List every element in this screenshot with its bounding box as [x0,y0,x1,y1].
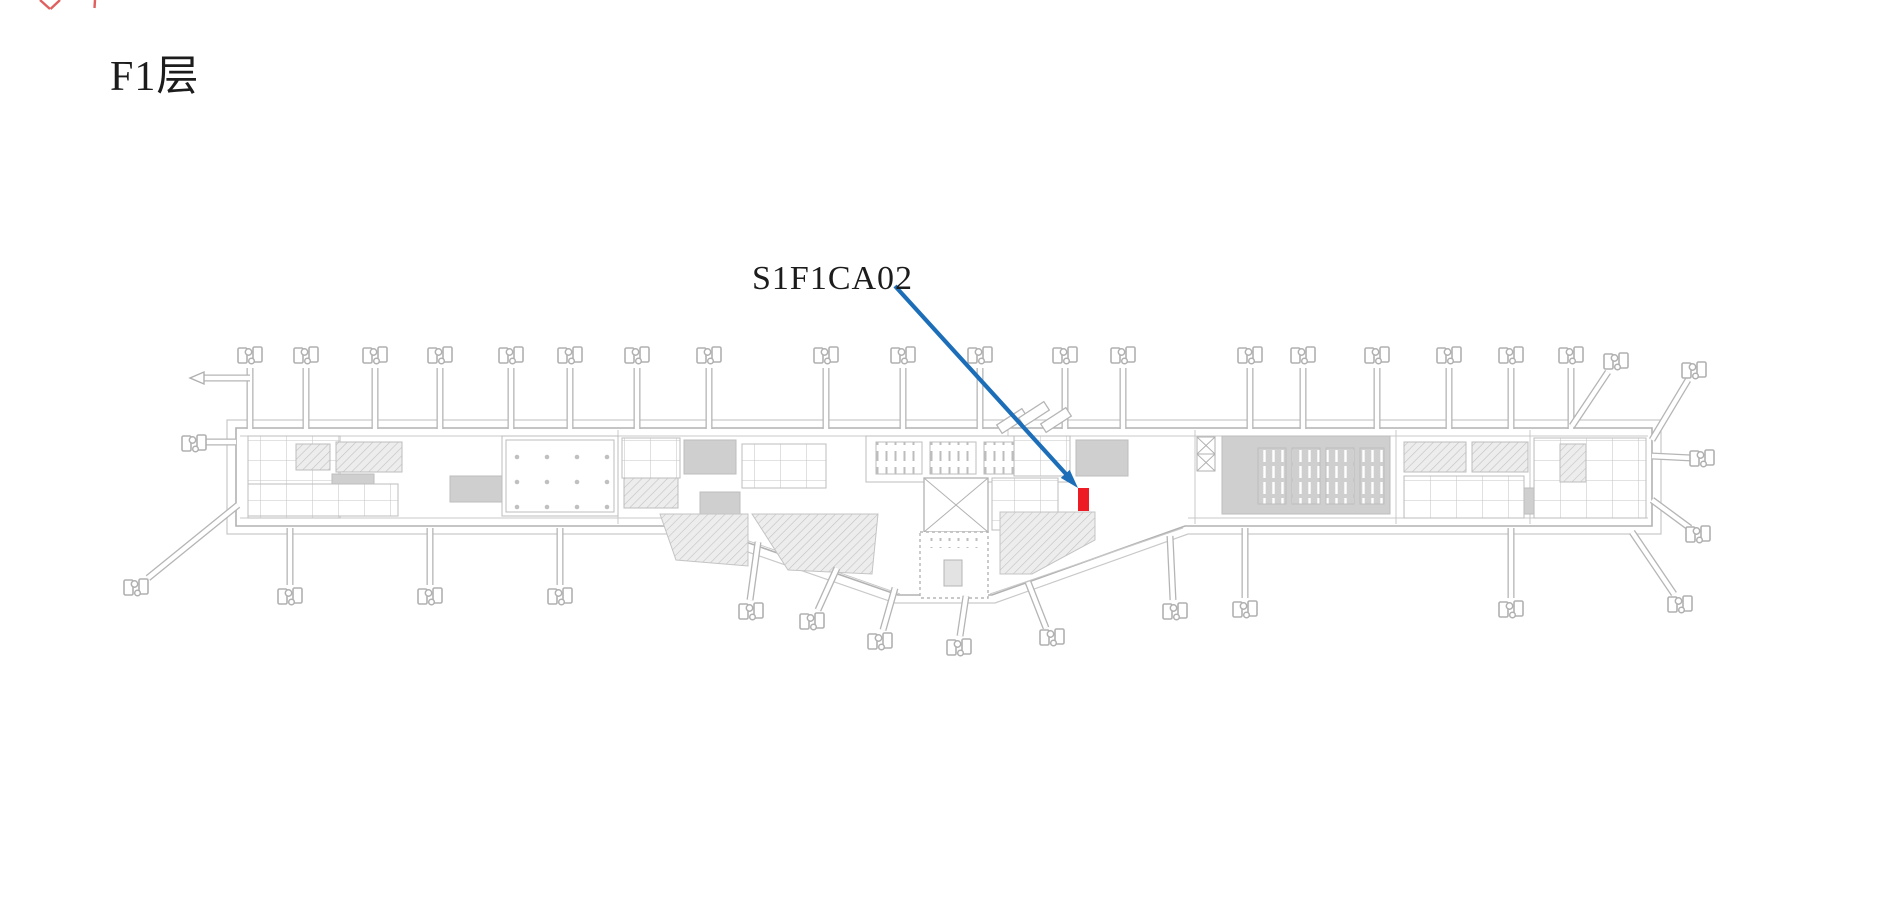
jet-bridge [1572,372,1608,426]
jet-bridge [1632,532,1674,594]
page-title: F1层 [110,42,199,103]
floor-plan-page: { "page": { "title": "F1层", "background_… [0,0,1900,917]
gate-icon [1682,362,1706,379]
jet-bridge [1652,456,1692,458]
gate-icon [428,347,452,364]
jet-bridge [148,505,238,578]
gate-icon [814,347,838,364]
bridge-ramp-tip [190,372,204,384]
gate-icon [558,347,582,364]
room-block [876,442,922,474]
hatched-zone [660,514,748,566]
room-block [1292,448,1320,504]
room-block [742,444,826,488]
room-block [1560,444,1586,482]
gate-icon [548,588,572,605]
room-block [1326,448,1354,504]
gate-icon [1233,601,1257,618]
gate-icon [1559,347,1583,364]
room-block [930,442,976,474]
jet-bridge [883,588,895,630]
gate-icon [124,579,148,596]
gate-icon [418,588,442,605]
atrium [924,478,988,532]
jet-bridge [960,596,966,636]
room-block [1404,476,1524,518]
room-block [506,440,614,512]
gate-icon [278,588,302,605]
gate-icon [1437,347,1461,364]
jet-bridge [818,568,837,610]
gate-icon [947,639,971,656]
room-block [296,444,330,470]
protrusion-ticks [926,538,982,548]
gate-icon [1365,347,1389,364]
gate-icon [1499,601,1523,618]
gate-icon [625,347,649,364]
center-protrusion [920,532,988,598]
gate-icon [1686,526,1710,543]
room-block [624,478,678,508]
room-block [1076,440,1128,476]
room-block [1360,448,1384,504]
gate-icon [1163,603,1187,620]
room-block [684,440,736,474]
gate-icon [1499,347,1523,364]
gate-icon [238,347,262,364]
room-block [1258,448,1286,504]
stage: F1层 S1F1CA02 [0,0,1900,917]
location-marker[interactable] [1078,488,1089,511]
room-block [1472,442,1528,472]
room-block [1404,442,1466,472]
gate-icon [499,347,523,364]
callout-label: S1F1CA02 [752,260,913,298]
room-block [1534,438,1646,518]
gate-icon [891,347,915,364]
room-block [450,476,508,502]
gate-icon [294,347,318,364]
gate-icon [1668,596,1692,613]
jet-bridge [1028,582,1046,628]
gate-icon [1040,629,1064,646]
jet-bridge [1652,380,1688,440]
gate-icon [1604,353,1628,370]
floor-plan-svg [0,0,1900,917]
room-block [248,484,398,516]
gate-icon [697,347,721,364]
gate-icon [1291,347,1315,364]
gate-icon [1111,347,1135,364]
jet-bridge [1170,536,1173,600]
gate-icon [800,613,824,630]
hatched-zone [752,514,878,574]
hatched-zone [1000,512,1095,574]
gate-icon [1238,347,1262,364]
room-block [622,438,680,478]
protrusion-core [944,560,962,586]
jet-bridge [1652,500,1690,528]
gate-icon [182,435,206,452]
gate-icon [968,347,992,364]
gate-icon [1053,347,1077,364]
gate-icon [739,603,763,620]
gate-icon [363,347,387,364]
gate-icon [1690,450,1714,467]
clipped-red-text-fragment [0,0,140,12]
gate-icon [868,633,892,650]
room-block [336,442,402,472]
